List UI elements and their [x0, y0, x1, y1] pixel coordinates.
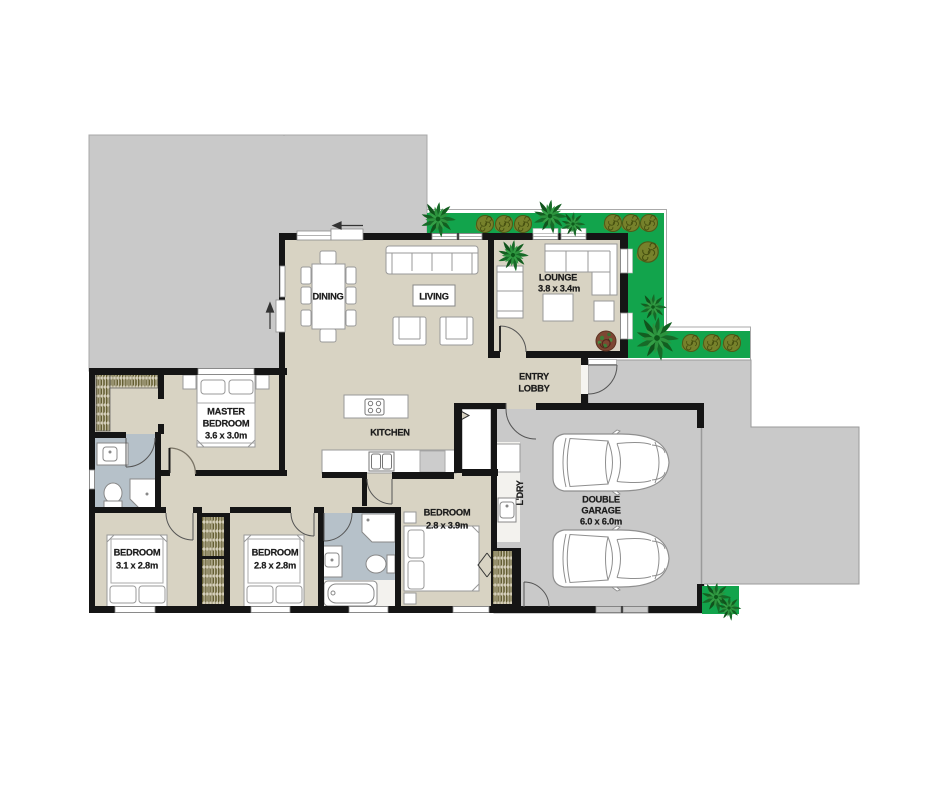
svg-text:3.6 x 3.0m: 3.6 x 3.0m [205, 431, 247, 441]
svg-text:6.0 x 6.0m: 6.0 x 6.0m [580, 517, 622, 527]
svg-text:BEDROOM: BEDROOM [252, 548, 299, 558]
svg-text:BEDROOM: BEDROOM [424, 508, 471, 518]
svg-text:LIVING: LIVING [419, 292, 449, 302]
svg-text:DINING: DINING [312, 292, 343, 302]
svg-text:BEDROOM: BEDROOM [203, 419, 250, 429]
svg-text:2.8 x 2.8m: 2.8 x 2.8m [254, 561, 296, 571]
svg-text:GARAGE: GARAGE [581, 506, 620, 516]
svg-text:BEDROOM: BEDROOM [114, 548, 161, 558]
svg-text:L'DRY: L'DRY [515, 480, 525, 505]
svg-text:LOUNGE: LOUNGE [539, 273, 577, 283]
svg-text:ENTRY: ENTRY [519, 372, 550, 382]
svg-text:3.1 x 2.8m: 3.1 x 2.8m [116, 561, 158, 571]
svg-text:DOUBLE: DOUBLE [582, 495, 620, 505]
svg-text:3.8 x 3.4m: 3.8 x 3.4m [538, 284, 580, 294]
svg-text:MASTER: MASTER [207, 407, 245, 417]
svg-text:2.8 x 3.9m: 2.8 x 3.9m [426, 521, 468, 531]
svg-text:KITCHEN: KITCHEN [370, 428, 410, 438]
svg-text:LOBBY: LOBBY [518, 384, 550, 394]
